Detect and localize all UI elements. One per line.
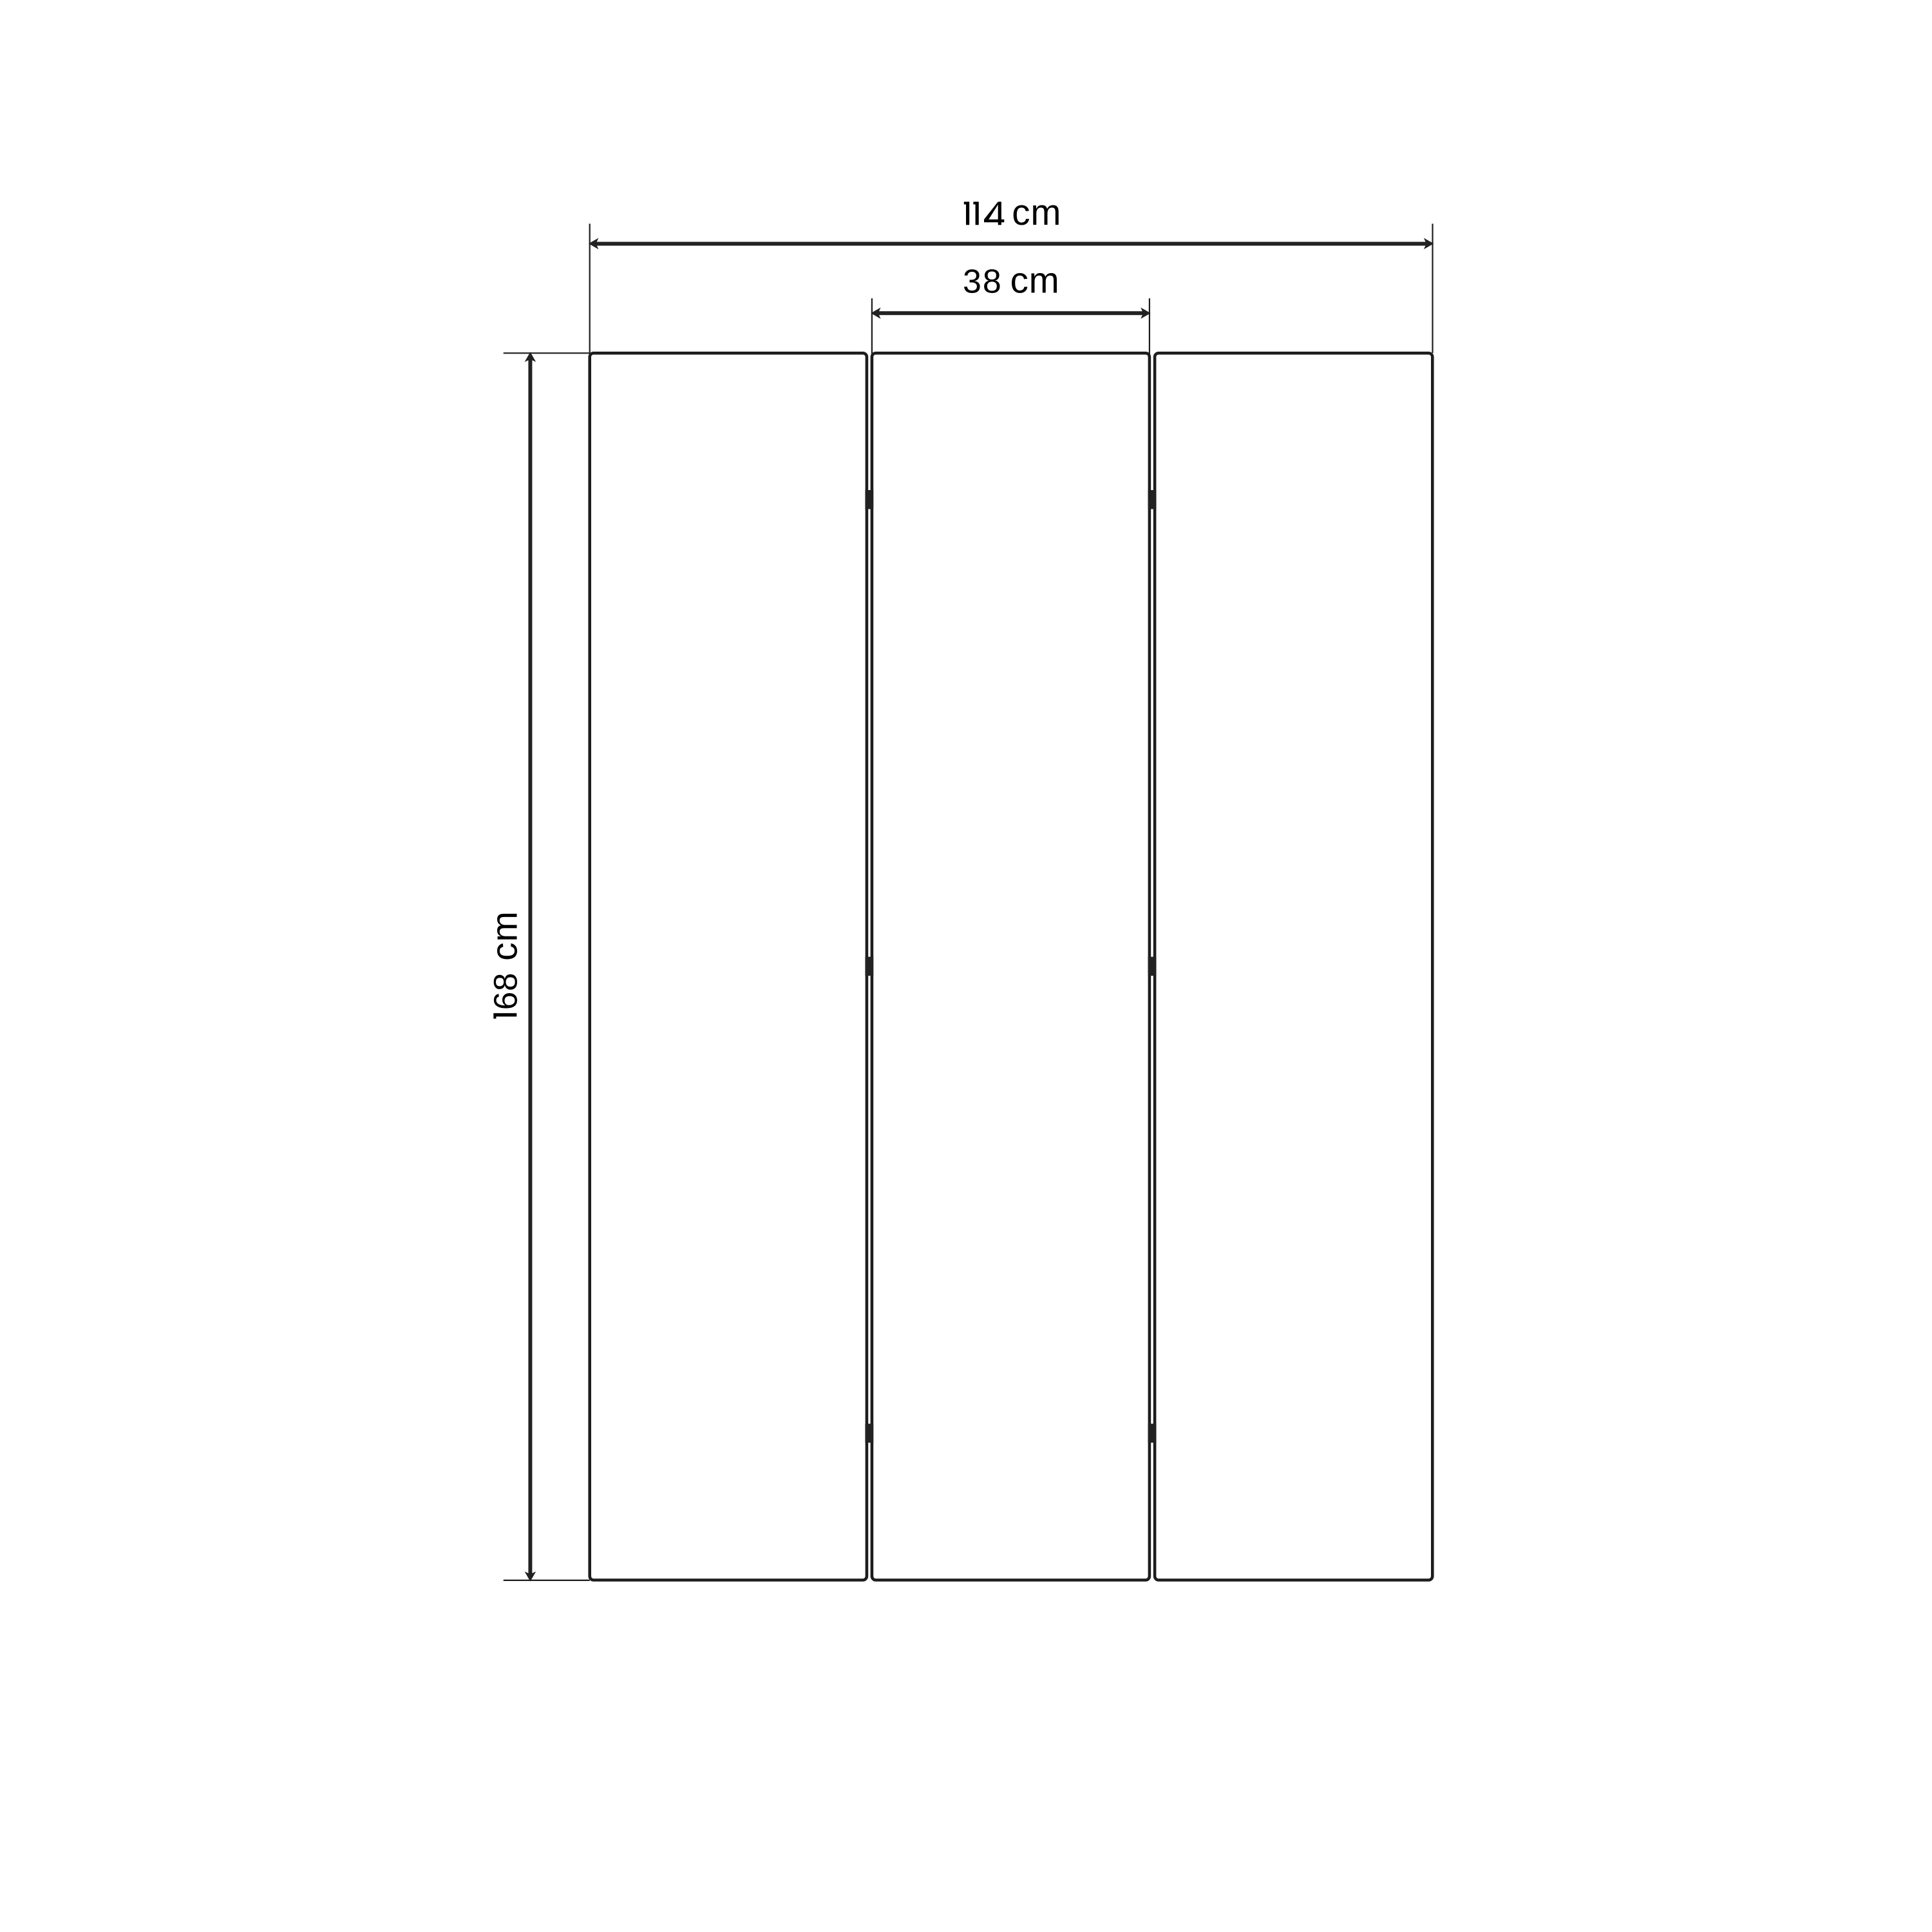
svg-text:68: 68 [487, 972, 524, 1010]
svg-text:cm: cm [484, 911, 525, 961]
svg-text:38: 38 [963, 263, 1003, 300]
svg-text:cm: cm [1012, 192, 1061, 232]
svg-text:cm: cm [1010, 260, 1060, 300]
